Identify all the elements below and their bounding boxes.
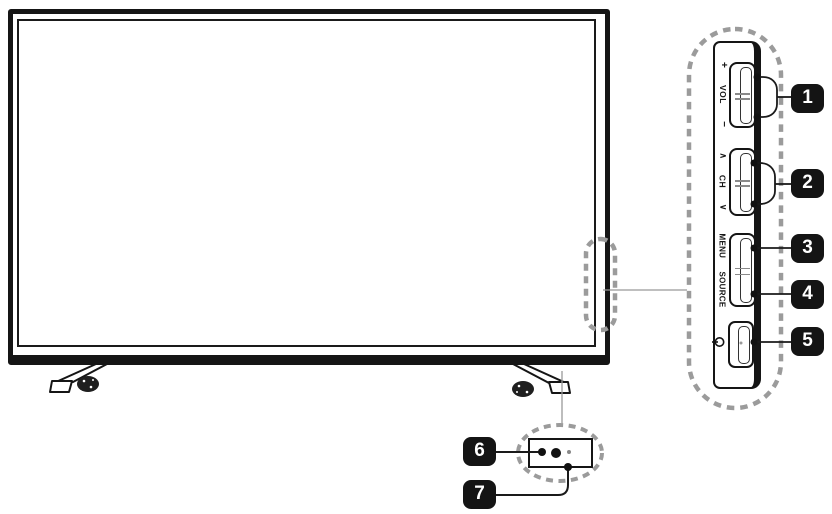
rocker-grip-line — [735, 98, 750, 100]
tv-stand-right — [512, 364, 570, 397]
ir-sensor-box — [528, 438, 593, 468]
callout-3-badge: 3 — [791, 234, 824, 263]
callout-6-badge: 6 — [463, 437, 496, 466]
tv-controls-diagram: + VOL − ∧ CH ∨ MENU SOURCE 1 2 3 4 5 6 7 — [0, 0, 832, 514]
menu-label: MENU — [718, 234, 727, 259]
callout-2-badge: 2 — [791, 169, 824, 198]
rocker-grip-line — [735, 93, 750, 95]
callout-1-badge: 1 — [791, 84, 824, 113]
volume-minus-label: − — [718, 121, 729, 127]
rocker-seam — [740, 153, 752, 212]
tv-screen — [17, 19, 596, 347]
channel-up-icon: ∧ — [718, 153, 729, 160]
channel-down-icon: ∨ — [718, 204, 729, 211]
tv-stand-left — [50, 364, 107, 392]
rocker-seam — [738, 326, 750, 364]
rocker-grip-line — [735, 185, 750, 187]
callout-7-badge: 7 — [463, 480, 496, 509]
volume-text-label: VOL — [719, 85, 729, 104]
power-button — [728, 321, 754, 368]
volume-label: + VOL − — [717, 62, 730, 127]
menu-source-label: MENU SOURCE — [716, 234, 729, 308]
channel-label: ∧ CH ∨ — [717, 153, 730, 211]
callout-5-badge: 5 — [791, 327, 824, 356]
menu-source-rocker — [729, 233, 756, 307]
volume-plus-label: + — [718, 62, 729, 68]
volume-rocker — [729, 62, 756, 128]
channel-text-label: CH — [718, 175, 728, 188]
callout-4-badge: 4 — [791, 280, 824, 309]
source-label: SOURCE — [718, 271, 727, 307]
rocker-seam — [740, 67, 752, 124]
rocker-seam — [740, 238, 752, 303]
callout-1-line — [757, 77, 791, 117]
rocker-grip-line — [735, 180, 750, 182]
callout-7-line — [496, 470, 568, 495]
rocker-grip-line — [735, 268, 750, 270]
channel-rocker — [729, 148, 756, 216]
rocker-grip-line — [735, 274, 750, 276]
